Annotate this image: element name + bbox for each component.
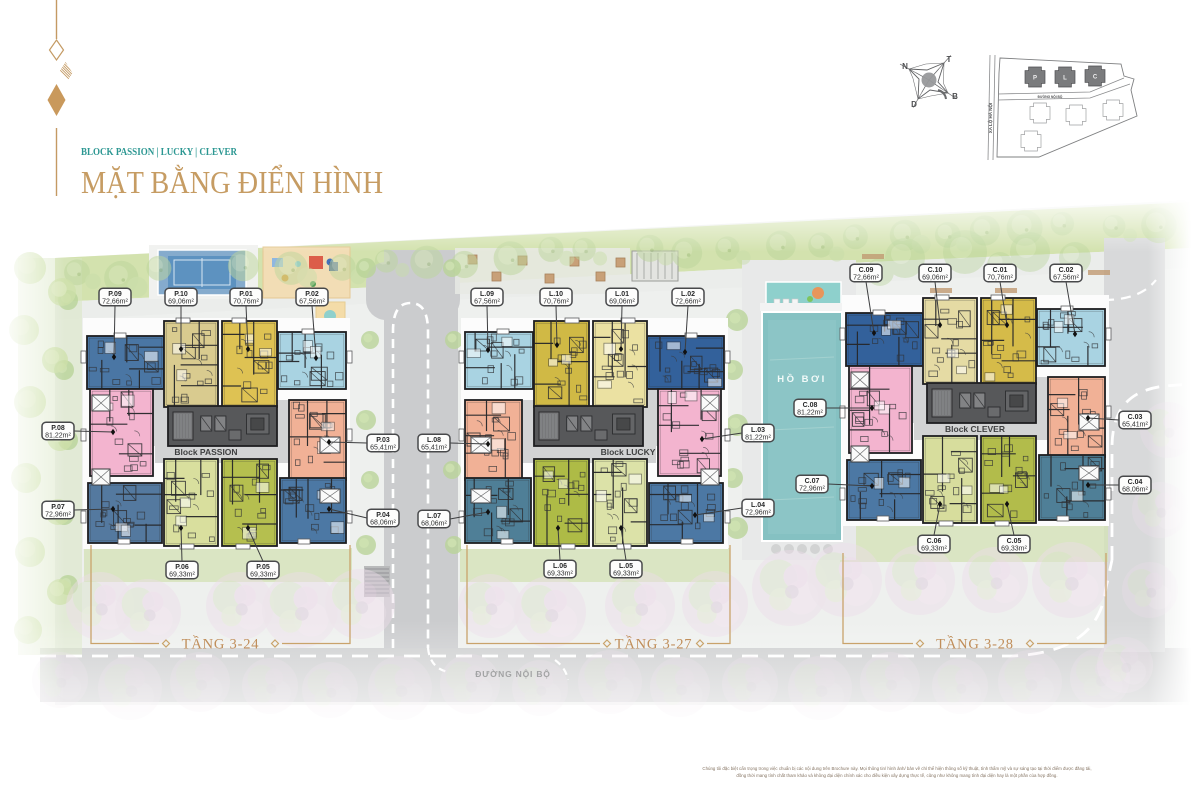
svg-text:68,06m²: 68,06m² <box>421 521 447 528</box>
svg-text:65,41m²: 65,41m² <box>421 445 447 452</box>
svg-text:68,06m²: 68,06m² <box>1122 487 1148 494</box>
svg-text:P.09: P.09 <box>108 291 122 298</box>
svg-text:67,56m²: 67,56m² <box>299 299 325 306</box>
svg-text:65,41m²: 65,41m² <box>370 445 396 452</box>
svg-text:69,33m²: 69,33m² <box>921 546 947 553</box>
svg-text:65,41m²: 65,41m² <box>1122 422 1148 429</box>
svg-text:C.10: C.10 <box>928 267 943 274</box>
svg-text:69,33m²: 69,33m² <box>613 571 639 578</box>
svg-text:C.02: C.02 <box>1059 267 1074 274</box>
svg-text:72,66m²: 72,66m² <box>102 299 128 306</box>
svg-text:Block LUCKY: Block LUCKY <box>601 447 656 457</box>
svg-text:T: T <box>947 55 952 64</box>
svg-text:N: N <box>902 62 908 71</box>
svg-text:72,96m²: 72,96m² <box>799 486 825 493</box>
svg-text:67,56m²: 67,56m² <box>1053 275 1079 282</box>
svg-text:72,66m²: 72,66m² <box>853 275 879 282</box>
svg-text:68,06m²: 68,06m² <box>370 520 396 527</box>
svg-text:C: C <box>1093 75 1098 81</box>
svg-text:đồng thời mang tính chất tham: đồng thời mang tính chất tham khảo và kh… <box>736 773 1057 778</box>
svg-text:P.06: P.06 <box>175 564 189 571</box>
svg-text:Block PASSION: Block PASSION <box>174 447 237 457</box>
svg-text:TẦNG 3-28: TẦNG 3-28 <box>936 636 1014 653</box>
svg-text:P.08: P.08 <box>51 425 65 432</box>
svg-text:P: P <box>1033 76 1037 82</box>
svg-text:BLOCK PASSION | LUCKY | CLEVER: BLOCK PASSION | LUCKY | CLEVER <box>81 147 238 158</box>
svg-text:70,76m²: 70,76m² <box>543 299 569 306</box>
svg-text:81,22m²: 81,22m² <box>45 433 71 440</box>
svg-text:70,76m²: 70,76m² <box>987 275 1013 282</box>
svg-text:L.01: L.01 <box>615 291 629 298</box>
svg-text:69,06m²: 69,06m² <box>609 299 635 306</box>
svg-text:B: B <box>952 92 958 101</box>
svg-text:L.05: L.05 <box>619 563 633 570</box>
svg-text:C.07: C.07 <box>805 478 820 485</box>
svg-text:ĐƯỜNG NỘI BỘ: ĐƯỜNG NỘI BỘ <box>1038 94 1063 99</box>
svg-text:69,33m²: 69,33m² <box>1001 546 1027 553</box>
svg-text:P.03: P.03 <box>376 437 390 444</box>
svg-text:72,96m²: 72,96m² <box>45 512 71 519</box>
svg-text:P.02: P.02 <box>305 291 319 298</box>
svg-text:P.01: P.01 <box>239 291 253 298</box>
svg-text:L.06: L.06 <box>553 563 567 570</box>
svg-text:P.07: P.07 <box>51 504 65 511</box>
svg-text:L.03: L.03 <box>751 427 765 434</box>
svg-text:67,56m²: 67,56m² <box>474 299 500 306</box>
svg-text:Block CLEVER: Block CLEVER <box>945 424 1005 434</box>
svg-text:C.01: C.01 <box>993 267 1008 274</box>
svg-text:81,22m²: 81,22m² <box>745 435 771 442</box>
svg-text:L.09: L.09 <box>480 291 494 298</box>
svg-text:72,96m²: 72,96m² <box>745 510 771 517</box>
svg-text:69,06m²: 69,06m² <box>168 299 194 306</box>
svg-text:D: D <box>911 100 917 109</box>
svg-text:MẶT BẰNG ĐIỂN HÌNH: MẶT BẰNG ĐIỂN HÌNH <box>81 164 383 200</box>
svg-text:L.07: L.07 <box>427 513 441 520</box>
svg-text:P.05: P.05 <box>256 564 270 571</box>
svg-text:L: L <box>1063 76 1067 82</box>
svg-text:TẦNG 3-24: TẦNG 3-24 <box>182 636 260 653</box>
svg-text:69,33m²: 69,33m² <box>547 571 573 578</box>
svg-text:L.04: L.04 <box>751 502 765 509</box>
svg-text:69,33m²: 69,33m² <box>169 572 195 579</box>
svg-text:69,06m²: 69,06m² <box>922 275 948 282</box>
svg-text:C.06: C.06 <box>927 538 942 545</box>
svg-text:C.04: C.04 <box>1128 479 1143 486</box>
svg-text:L.08: L.08 <box>427 437 441 444</box>
svg-text:70,76m²: 70,76m² <box>233 299 259 306</box>
svg-text:P.10: P.10 <box>174 291 188 298</box>
svg-text:81,22m²: 81,22m² <box>797 410 823 417</box>
svg-text:C.08: C.08 <box>803 402 818 409</box>
svg-text:L.02: L.02 <box>681 291 695 298</box>
svg-text:TẦNG 3-27: TẦNG 3-27 <box>615 636 693 653</box>
svg-text:C.03: C.03 <box>1128 414 1143 421</box>
svg-text:ĐƯỜNG NỘI BỘ: ĐƯỜNG NỘI BỘ <box>475 668 550 679</box>
svg-text:C.09: C.09 <box>859 267 874 274</box>
svg-text:HỒ BƠI: HỒ BƠI <box>777 373 827 385</box>
svg-text:69,33m²: 69,33m² <box>250 572 276 579</box>
svg-text:XA LỘ HÀ NỘI: XA LỘ HÀ NỘI <box>986 103 993 134</box>
svg-text:Chúng tôi đặc biệt cẩn trọng t: Chúng tôi đặc biệt cẩn trọng trong việc … <box>702 766 1091 771</box>
svg-text:72,66m²: 72,66m² <box>675 299 701 306</box>
svg-text:P.04: P.04 <box>376 512 390 519</box>
svg-text:C.05: C.05 <box>1007 538 1022 545</box>
svg-text:L.10: L.10 <box>549 291 563 298</box>
